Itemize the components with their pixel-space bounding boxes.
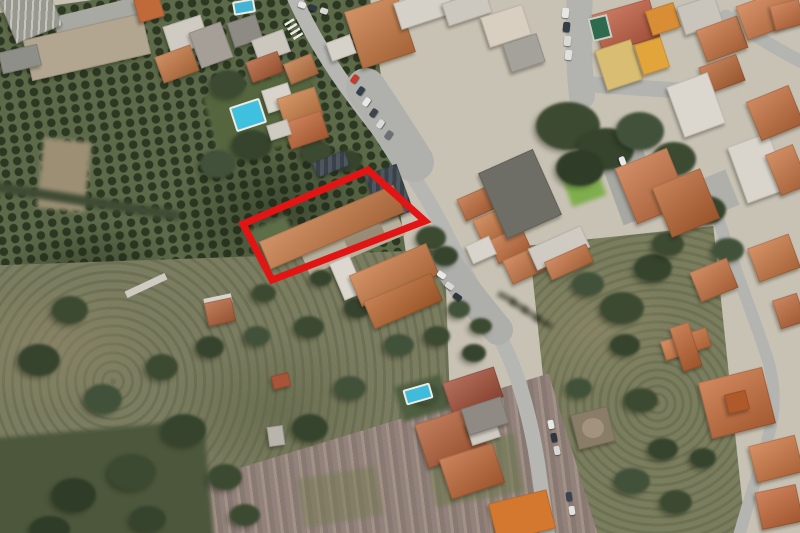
aerial-satellite-photo (0, 0, 800, 533)
annotation-layer (0, 0, 800, 533)
property-boundary-highlight (243, 170, 425, 280)
